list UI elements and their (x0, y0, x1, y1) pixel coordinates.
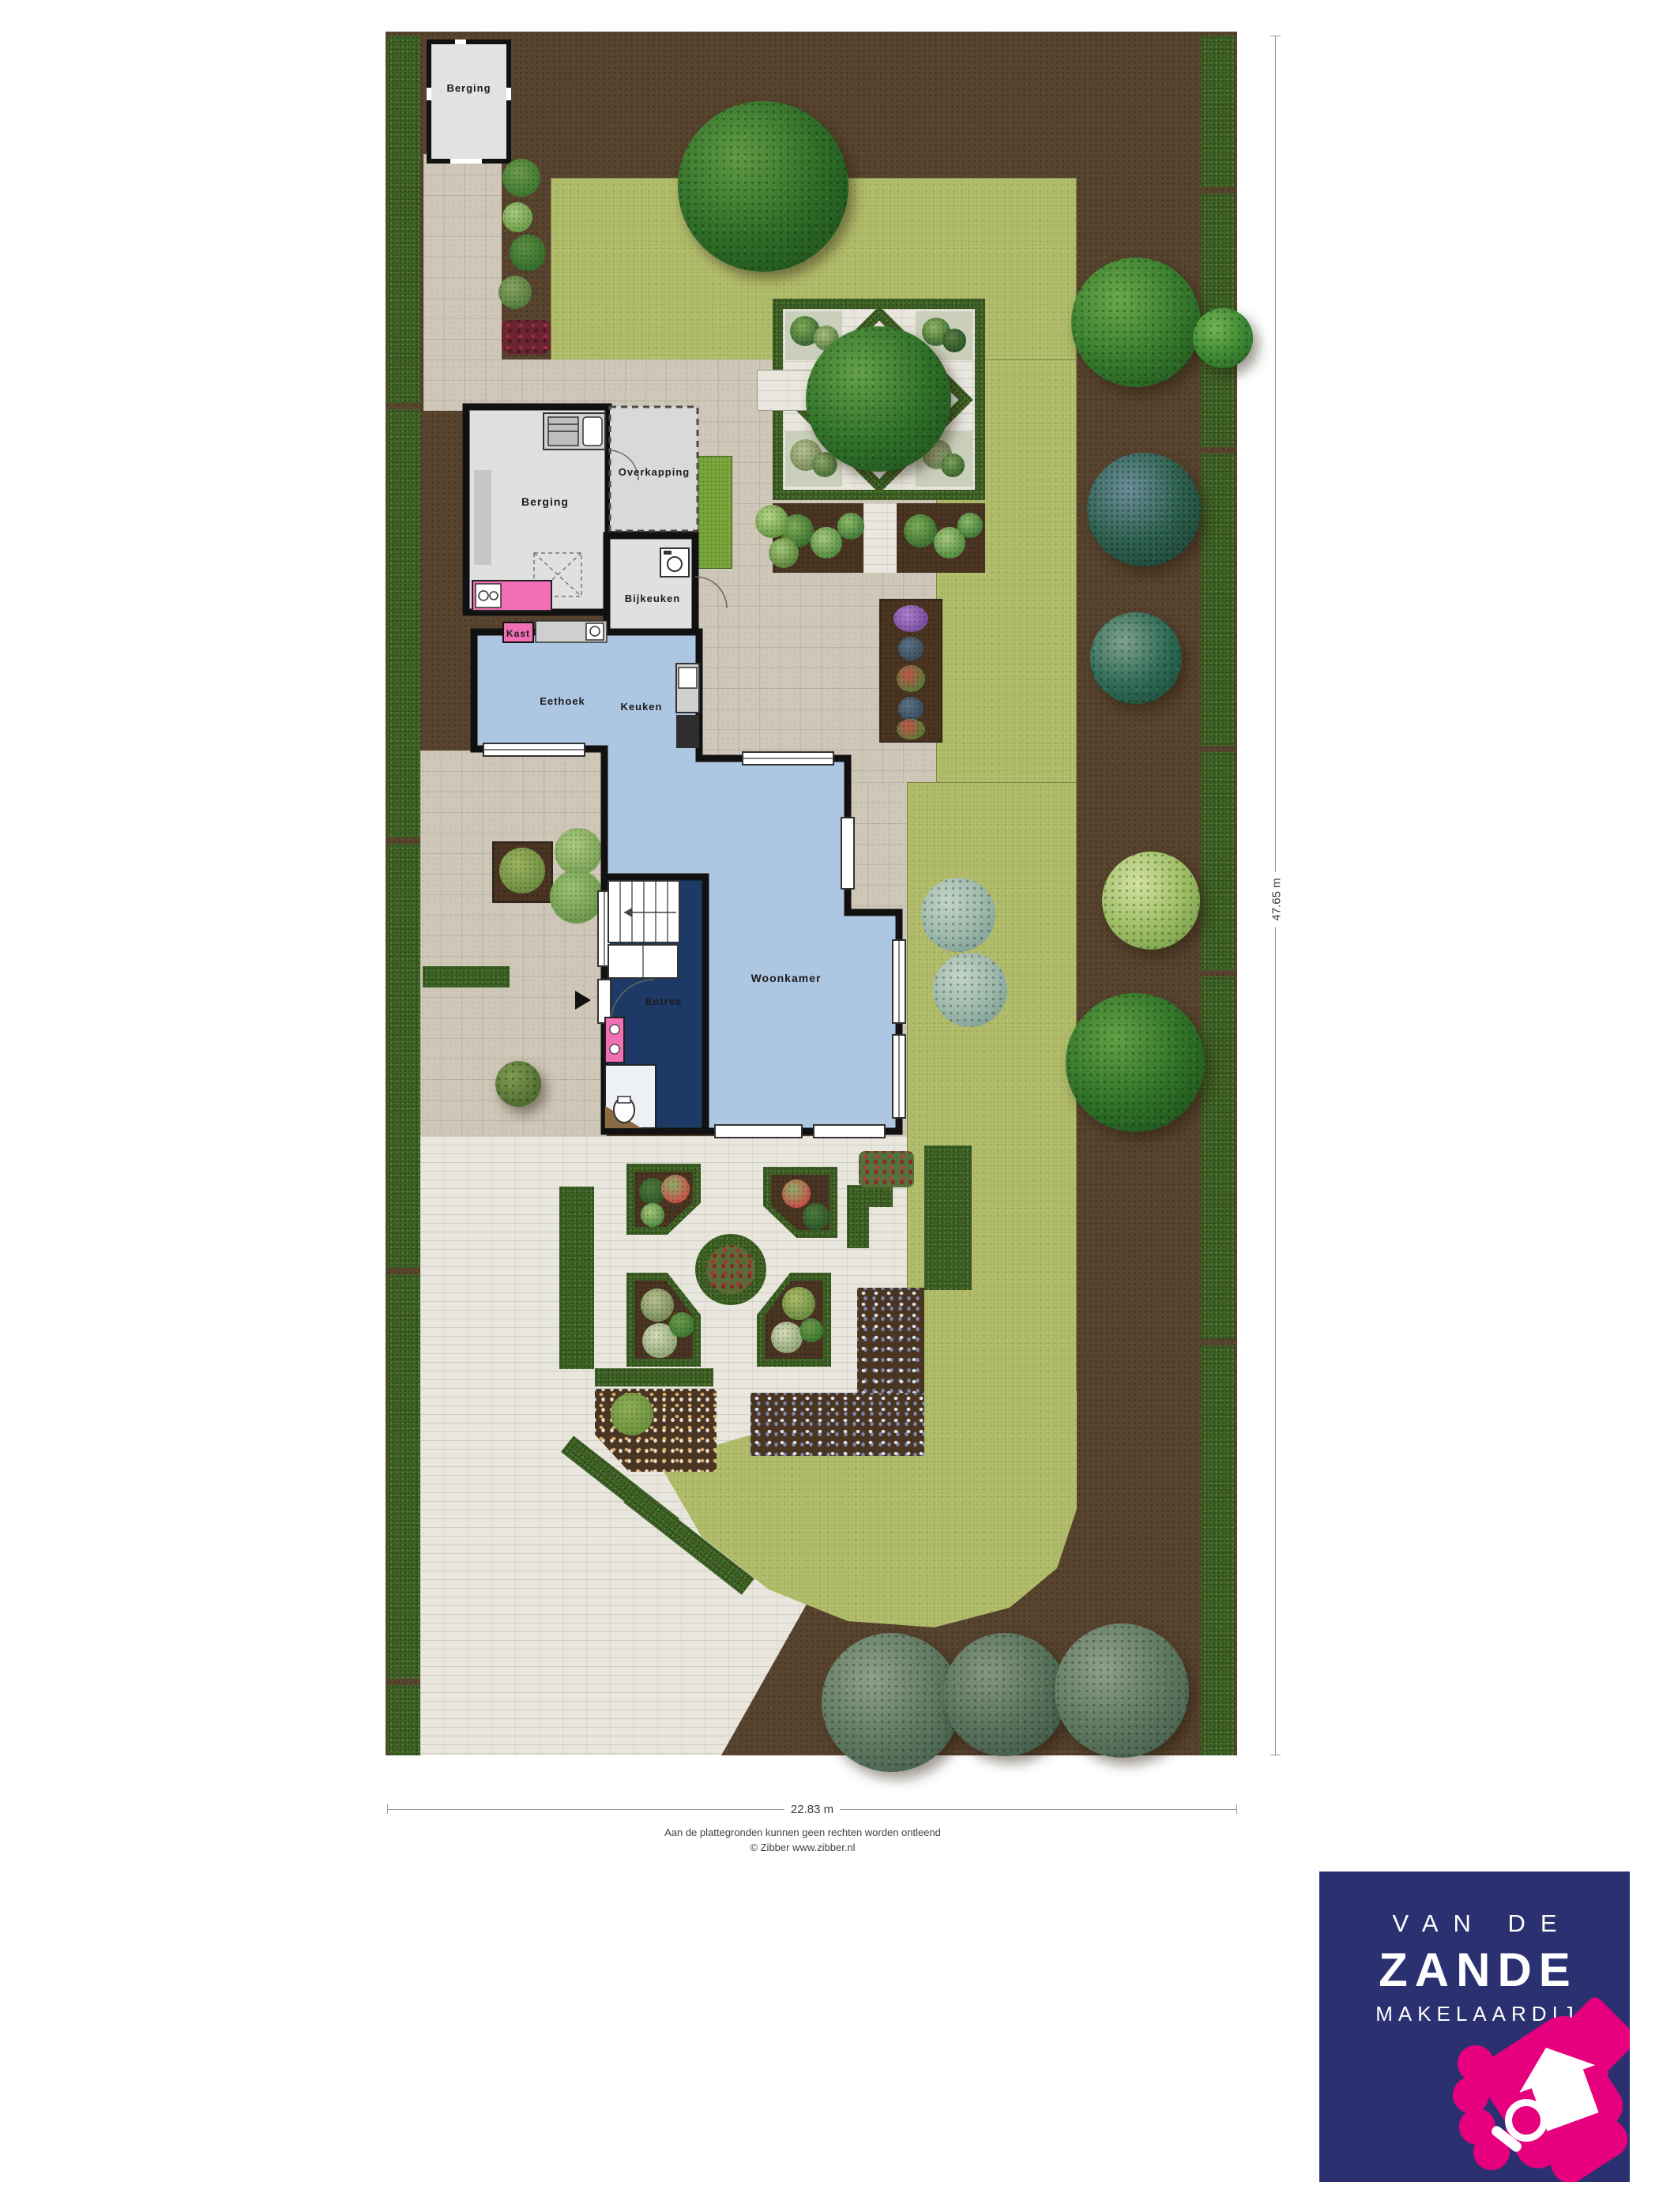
hedge-left (387, 1685, 420, 1755)
footer-note: Aan de plattegronden kunnen geen rechten… (408, 1825, 1198, 1855)
hedge-right (1201, 752, 1235, 970)
red-flower-circle (706, 1245, 755, 1294)
entrance-arrow-icon (575, 991, 591, 1010)
border-shrub (510, 235, 546, 271)
gray-green-bush (921, 878, 995, 952)
hedge-right (1201, 976, 1235, 1339)
hedge-right (1201, 36, 1235, 187)
large-tree (1071, 258, 1201, 387)
parterre-hedge-piece (847, 1207, 869, 1248)
disclaimer-text: Aan de plattegronden kunnen geen rechten… (408, 1825, 1198, 1840)
floorplan-page: Berging (0, 0, 1659, 2212)
light-green-tree (1102, 852, 1200, 950)
magnifier-lens-icon (1505, 2099, 1548, 2142)
hedge-right (1201, 453, 1235, 746)
lawn-strip-lower (907, 782, 1077, 1422)
logo-house-magnifier-icon (1453, 2007, 1627, 2177)
gravel-flower-bed (750, 1393, 924, 1456)
large-tree (678, 101, 848, 272)
shed-path (423, 154, 502, 411)
kitchen-sink (679, 668, 697, 688)
parterre-hedge-bar (559, 1187, 594, 1369)
hedge-ball (611, 1393, 653, 1435)
hedge-left (387, 844, 420, 1268)
garage-label: Berging (521, 495, 569, 508)
gray-green-bush (933, 953, 1007, 1027)
olive-tree (822, 1633, 961, 1772)
teal-bush (1087, 453, 1201, 566)
border-shrub (502, 159, 540, 197)
width-dimension-label: 22.83 m (784, 1803, 840, 1816)
credit-text: © Zibber www.zibber.nl (408, 1840, 1198, 1855)
large-tree (1066, 993, 1205, 1132)
width-dimension: 22.83 m (387, 1800, 1237, 1818)
agency-logo: VAN DE ZANDE MAKELAARDIJ (1319, 1872, 1630, 2182)
hedge-right (1201, 1345, 1235, 1755)
kitchen-label: Keuken (621, 701, 663, 713)
logo-line-zande: ZANDE (1319, 1943, 1630, 1997)
scullery-label: Bijkeuken (625, 592, 680, 604)
garage-shelf (474, 470, 491, 565)
shed: Berging (427, 39, 511, 164)
border-shrub (502, 202, 532, 232)
hedge-left (387, 409, 420, 837)
olive-tree (943, 1633, 1066, 1756)
hedge-left (387, 1274, 420, 1679)
garden-square-tree (806, 326, 951, 472)
olive-tree (1055, 1623, 1189, 1758)
front-door (598, 980, 611, 1023)
depth-dimension: 47.65 m (1270, 36, 1281, 1755)
parterre-hedge-block (924, 1145, 972, 1290)
red-flower-patch (502, 320, 551, 354)
parterre-circle (695, 1234, 766, 1305)
red-flower-patch (859, 1151, 914, 1187)
parterre-hedge-strip (595, 1368, 713, 1386)
teal-bush (1090, 612, 1182, 704)
living-label: Woonkamer (751, 972, 822, 984)
dining-label: Eethoek (540, 695, 585, 707)
site-plan: Berging (386, 32, 1237, 1755)
depth-dimension-label: 47.65 m (1270, 871, 1284, 927)
overhang-tree (1193, 308, 1253, 368)
hedge-left (387, 36, 420, 403)
border-shrub (498, 276, 532, 309)
shed-label: Berging (431, 82, 506, 94)
closet-label: Kast (506, 628, 530, 639)
parterre-hedge-piece (847, 1185, 893, 1207)
house-plan: Kast (461, 399, 919, 1142)
shed-door (450, 159, 482, 164)
garage-sink (583, 417, 602, 446)
entry-label: Entree (645, 995, 682, 1007)
logo-line-van-de: VAN DE (1319, 1909, 1630, 1938)
stove (676, 715, 699, 748)
carport-label: Overkapping (619, 466, 690, 478)
